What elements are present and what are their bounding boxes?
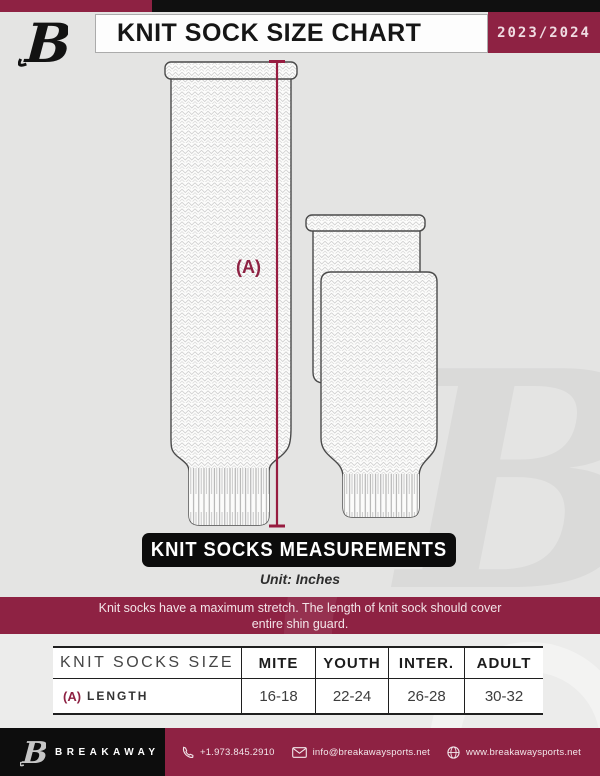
brand-logo-letter: B <box>22 12 68 75</box>
measurements-banner: KNIT SOCKS MEASUREMENTS <box>142 533 456 567</box>
footer-email-address: info@breakawaysports.net <box>313 747 430 758</box>
globe-icon <box>447 746 460 759</box>
stretch-note-line2: entire shin guard. <box>252 616 349 632</box>
table-row-length-label: (A) LENGTH <box>53 679 241 713</box>
unit-note-label: Unit: Inches <box>260 571 340 587</box>
length-value-inter: 26-28 <box>388 679 464 713</box>
phone-icon <box>181 746 194 759</box>
length-value-youth: 22-24 <box>315 679 388 713</box>
size-table: KNIT SOCKS SIZE MITE YOUTH INTER. ADULT … <box>53 646 543 715</box>
table-header-mite: MITE <box>241 648 315 679</box>
stretch-note-banner: Knit socks have a maximum stretch. The l… <box>0 597 600 634</box>
table-header-size: KNIT SOCKS SIZE <box>53 648 241 679</box>
stretch-note-line1: Knit socks have a maximum stretch. The l… <box>99 600 502 616</box>
footer-website: www.breakawaysports.net <box>447 746 581 759</box>
length-value-mite: 16-18 <box>241 679 315 713</box>
page: B <box>0 0 600 776</box>
length-value-adult: 30-32 <box>464 679 543 713</box>
length-label: LENGTH <box>87 689 148 703</box>
length-key: (A) <box>63 689 81 704</box>
footer-phone-number: +1.973.845.2910 <box>200 747 275 758</box>
table-header-youth: YOUTH <box>315 648 388 679</box>
footer-website-url: www.breakawaysports.net <box>466 747 581 758</box>
footer-brand-block: B BREAKAWAY <box>0 728 165 776</box>
footer-logo: B <box>20 734 46 770</box>
title-bar: KNIT SOCK SIZE CHART <box>95 14 488 53</box>
main-diagram-area: B <box>0 0 600 597</box>
page-title: KNIT SOCK SIZE CHART <box>117 19 421 48</box>
brand-logo: B <box>18 12 68 76</box>
knit-socks-illustration: (A) <box>0 0 600 597</box>
top-strip-black <box>152 0 600 12</box>
top-strip-maroon <box>0 0 152 12</box>
sock-small <box>321 272 437 517</box>
footer-brand-name: BREAKAWAY <box>55 747 160 758</box>
footer-contact-bar: +1.973.845.2910 info@breakawaysports.net… <box>165 728 600 776</box>
table-header-inter: INTER. <box>388 648 464 679</box>
measurement-label-a: (A) <box>236 257 261 277</box>
size-table-section: KNIT SOCKS SIZE MITE YOUTH INTER. ADULT … <box>0 634 600 728</box>
footer-email: info@breakawaysports.net <box>292 747 430 758</box>
table-header-adult: ADULT <box>464 648 543 679</box>
unit-note: Unit: Inches <box>0 571 600 589</box>
measurements-banner-label: KNIT SOCKS MEASUREMENTS <box>151 539 447 562</box>
season-label: 2023/2024 <box>497 25 591 41</box>
footer-logo-letter: B <box>20 736 46 770</box>
footer-phone: +1.973.845.2910 <box>181 746 275 759</box>
envelope-icon <box>292 747 307 758</box>
season-badge: 2023/2024 <box>488 12 600 53</box>
